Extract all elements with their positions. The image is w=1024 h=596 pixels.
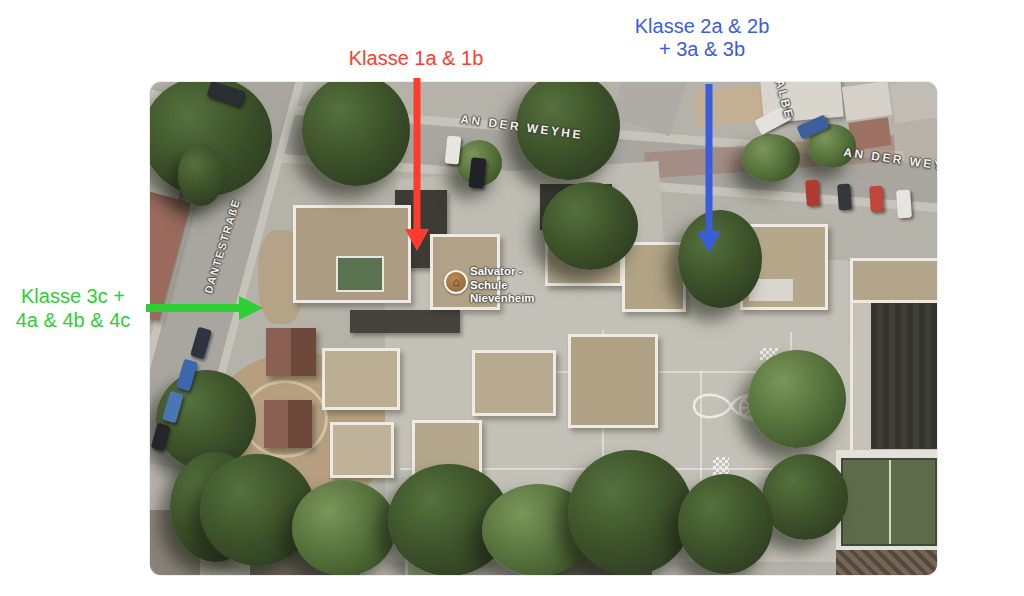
annotation-label-red: Klasse 1a & 1b xyxy=(336,47,496,70)
court-center-line xyxy=(889,460,891,544)
skylight xyxy=(336,256,384,292)
poi-line-3: Nievenheim xyxy=(470,292,535,306)
sports-court-frame xyxy=(836,450,937,550)
car xyxy=(837,184,852,211)
car xyxy=(445,135,462,164)
school-building-d xyxy=(622,242,686,312)
satellite-map-image: AN DER WEYHE AN DER WEY DANTESTRAßE ALBE… xyxy=(150,82,937,575)
annotation-label-blue: Klasse 2a & 2b + 3a & 3b xyxy=(620,15,784,61)
blue-label-line-2: + 3a & 3b xyxy=(620,38,784,61)
tree xyxy=(678,474,773,574)
sports-court xyxy=(841,458,937,546)
school-building-i xyxy=(322,348,400,410)
school-poi-icon: ⌂ xyxy=(444,270,468,294)
tree xyxy=(748,350,846,448)
pitched-roof-house xyxy=(266,328,316,376)
tree xyxy=(678,210,762,308)
school-building-h xyxy=(568,334,658,428)
blue-label-line-1: Klasse 2a & 2b xyxy=(620,15,784,38)
tree xyxy=(178,144,224,206)
tree xyxy=(762,454,848,540)
dark-striped-roof xyxy=(871,303,937,449)
school-glyph: ⌂ xyxy=(452,276,459,288)
tree xyxy=(542,182,638,270)
annotation-label-green: Klasse 3c + 4a & 4b & 4c xyxy=(2,284,144,332)
house xyxy=(842,82,892,121)
car xyxy=(869,186,884,213)
walkway-hatched xyxy=(836,550,937,575)
tree xyxy=(568,450,693,575)
tree xyxy=(742,134,800,182)
school-poi-label: Salvator - Schule Nievenheim xyxy=(470,265,535,306)
annotated-school-map-page: { "annotations": { "red": { "text": "Kla… xyxy=(0,0,1024,596)
poi-line-2: Schule xyxy=(470,279,535,293)
poi-line-1: Salvator - xyxy=(470,265,535,279)
school-building-j xyxy=(330,422,394,478)
car xyxy=(468,157,486,188)
roof-connector xyxy=(350,310,460,333)
building-right-large xyxy=(850,300,937,458)
school-building-g xyxy=(472,350,556,416)
green-label-line-1: Klasse 3c + xyxy=(2,284,144,308)
car xyxy=(896,190,912,219)
green-label-line-2: 4a & 4b & 4c xyxy=(2,308,144,332)
pitched-roof-house xyxy=(264,400,312,448)
road-branch-north xyxy=(611,82,688,136)
house xyxy=(889,82,937,123)
tree xyxy=(292,480,396,575)
car xyxy=(805,180,820,207)
school-building-a xyxy=(293,205,411,303)
